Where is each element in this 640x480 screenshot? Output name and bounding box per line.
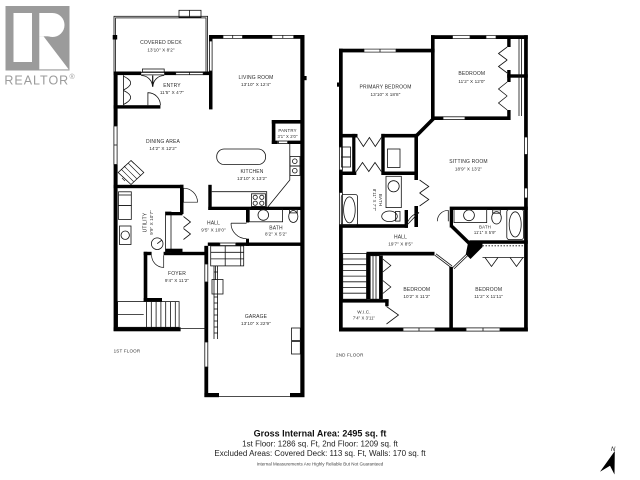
svg-text:FOYER: FOYER (168, 271, 186, 277)
svg-text:10'2" X 11'2": 10'2" X 11'2" (403, 294, 430, 299)
svg-text:13'10" X 8'2": 13'10" X 8'2" (147, 48, 175, 53)
svg-text:11'1" X 5'9": 11'1" X 5'9" (474, 230, 497, 235)
svg-text:COVERED DECK: COVERED DECK (140, 40, 182, 46)
svg-text:13'10" X 18'8": 13'10" X 18'8" (371, 92, 401, 97)
svg-text:DINING AREA: DINING AREA (146, 139, 180, 145)
svg-text:W.I.C.: W.I.C. (357, 310, 370, 315)
svg-text:Excluded Areas: Covered Deck:: Excluded Areas: Covered Deck: 113 sq. Ft… (214, 449, 426, 458)
svg-text:PRIMARY BEDROOM: PRIMARY BEDROOM (359, 85, 411, 91)
svg-text:9'4" X 11'2": 9'4" X 11'2" (165, 278, 190, 283)
svg-text:GARAGE: GARAGE (245, 314, 268, 320)
svg-text:BATH: BATH (479, 224, 491, 229)
svg-text:ENTRY: ENTRY (163, 83, 181, 89)
svg-text:REALTOR: REALTOR (4, 73, 69, 87)
svg-text:3'1" X 2'0": 3'1" X 2'0" (277, 134, 298, 139)
svg-text:13'10" X 13'2": 13'10" X 13'2" (237, 176, 267, 181)
svg-text:BEDROOM: BEDROOM (475, 287, 502, 293)
svg-text:N: N (611, 447, 616, 453)
svg-text:Internal Measurements Are High: Internal Measurements Are Highly Reliabl… (257, 461, 384, 466)
svg-text:BATH: BATH (378, 194, 383, 207)
svg-text:9'9" X 10'7": 9'9" X 10'7" (149, 210, 154, 235)
svg-text:1st Floor: 1286 sq. Ft, 2nd Fl: 1st Floor: 1286 sq. Ft, 2nd Floor: 1209 … (242, 440, 398, 449)
svg-text:PANTRY: PANTRY (278, 128, 296, 133)
svg-text:1ST FLOOR: 1ST FLOOR (114, 349, 141, 354)
svg-text:Gross Internal Area: 2495 sq.: Gross Internal Area: 2495 sq. ft (254, 429, 387, 439)
svg-text:HALL: HALL (207, 221, 220, 227)
svg-text:13'10" X 22'9": 13'10" X 22'9" (241, 321, 271, 326)
svg-text:9'5" X 10'0": 9'5" X 10'0" (201, 228, 226, 233)
svg-text:BEDROOM: BEDROOM (458, 71, 485, 77)
svg-text:KITCHEN: KITCHEN (241, 169, 264, 175)
svg-text:7'4" X 3'11": 7'4" X 3'11" (353, 316, 376, 321)
svg-text:BEDROOM: BEDROOM (403, 287, 430, 293)
svg-text:11'2" X 12'0": 11'2" X 12'0" (458, 79, 485, 84)
svg-text:18'9" X 13'2": 18'9" X 13'2" (455, 167, 483, 172)
svg-text:SITTING ROOM: SITTING ROOM (449, 159, 487, 165)
svg-text:19'7" X 8'5": 19'7" X 8'5" (388, 242, 413, 247)
svg-text:11'5" X 4'7": 11'5" X 4'7" (160, 90, 185, 95)
svg-text:LIVING ROOM: LIVING ROOM (239, 75, 274, 81)
svg-text:14'2" X 12'2": 14'2" X 12'2" (149, 146, 177, 151)
svg-text:8'11" X 7'7": 8'11" X 7'7" (372, 189, 377, 212)
svg-text:UTILITY: UTILITY (143, 212, 149, 232)
svg-text:11'2" X 11'11": 11'2" X 11'11" (474, 294, 503, 299)
svg-text:®: ® (70, 73, 76, 81)
svg-text:HALL: HALL (394, 235, 407, 241)
svg-text:13'10" X 12'4": 13'10" X 12'4" (241, 82, 271, 87)
svg-text:2ND FLOOR: 2ND FLOOR (336, 353, 364, 358)
svg-text:8'2" X 5'2": 8'2" X 5'2" (265, 232, 287, 237)
